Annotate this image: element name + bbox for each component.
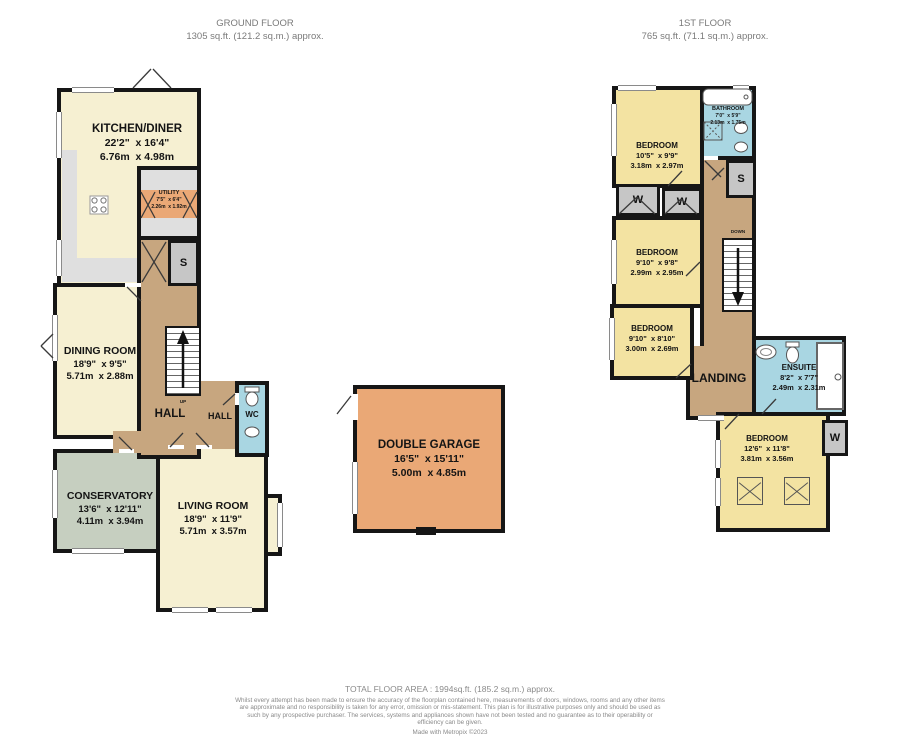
window: [352, 462, 358, 514]
hall-label: HALL: [138, 408, 202, 420]
garage-door-stub: [416, 527, 436, 535]
first-store-label: S: [737, 173, 744, 185]
window: [172, 607, 208, 613]
wardrobe-3-label: W: [830, 432, 840, 444]
bedroom3-label: BEDROOM 9'10" x 8'10" 3.00m x 2.69m: [612, 324, 692, 354]
bedroom4-fitting-right: [784, 477, 810, 505]
window: [216, 607, 252, 613]
wardrobe-3: W: [822, 420, 848, 456]
stairs-down: [722, 238, 754, 312]
window: [618, 85, 656, 91]
up-label: UP: [165, 399, 201, 404]
window: [72, 87, 114, 93]
door-opening: [704, 156, 718, 160]
bedroom4-label: BEDROOM 12'6" x 11'8" 3.81m x 3.56m: [720, 434, 814, 464]
total-floor-area: TOTAL FLOOR AREA : 1994sq.ft. (185.2 sq.…: [0, 684, 900, 694]
door-opening: [196, 445, 212, 449]
wardrobe-2: W: [662, 188, 702, 216]
window: [733, 85, 749, 91]
garage-door-opening: [352, 394, 358, 420]
ensuite-label: ENSUITE 8'2" x 7'7" 2.49m x 2.31m: [754, 363, 844, 393]
first-floor-header: 1ST FLOOR 765 sq.ft. (71.1 sq.m.) approx…: [570, 18, 840, 44]
wardrobe-2-label: W: [677, 196, 687, 208]
stairs-up: [165, 326, 201, 396]
credit-text: Made with Metropix ©2023: [0, 729, 900, 736]
kitchen-label: KITCHEN/DINER 22'2" x 16'4" 6.76m x 4.98…: [72, 122, 202, 164]
living-label: LIVING ROOM 18'9" x 11'9" 5.71m x 3.57m: [162, 500, 264, 538]
door-opening: [235, 393, 239, 405]
ground-floor-title: GROUND FLOOR: [120, 18, 390, 31]
dining-label: DINING ROOM 18'9" x 9'5" 5.71m x 2.88m: [55, 345, 145, 383]
wc-label: WC: [237, 410, 267, 419]
disclaimer-text: Whilst every attempt has been made to en…: [235, 697, 665, 727]
window: [56, 112, 62, 158]
ground-floor-area: 1305 sq.ft. (121.2 sq.m.) approx.: [120, 31, 390, 44]
ground-store-cupboard: S: [168, 240, 199, 286]
window: [715, 478, 721, 506]
window: [277, 503, 283, 547]
door-opening: [125, 283, 141, 287]
door-opening: [168, 445, 184, 449]
ground-store-label: S: [180, 257, 187, 269]
landing-label: LANDING: [680, 371, 758, 385]
window: [698, 415, 724, 421]
door-opening: [119, 449, 134, 453]
utility-label: UTILITY 7'5" x 6'4" 2.26m x 1.92m: [139, 190, 199, 210]
ground-floor-header: GROUND FLOOR 1305 sq.ft. (121.2 sq.m.) a…: [120, 18, 390, 44]
bedroom4-room: [716, 412, 830, 532]
down-label: DOWN: [722, 229, 754, 234]
wardrobe-1: W: [616, 184, 660, 216]
hall2-label: HALL: [199, 411, 241, 421]
garage-label: DOUBLE GARAGE 16'5" x 15'11" 5.00m x 4.8…: [363, 438, 495, 480]
floorplan-page: GROUND FLOOR 1305 sq.ft. (121.2 sq.m.) a…: [0, 0, 900, 742]
window: [72, 548, 124, 554]
first-floor-area: 765 sq.ft. (71.1 sq.m.) approx.: [570, 31, 840, 44]
bedroom1-room: [612, 86, 704, 188]
bedroom2-label: BEDROOM 9'10" x 9'8" 2.99m x 2.95m: [616, 248, 698, 278]
first-store-cupboard: S: [726, 160, 756, 198]
window: [56, 240, 62, 276]
conservatory-label: CONSERVATORY 13'6" x 12'11" 4.11m x 3.94…: [55, 490, 165, 528]
first-floor-title: 1ST FLOOR: [570, 18, 840, 31]
bathroom-label: BATHROOM 7'0" x 5'9" 2.13m x 1.75m: [701, 106, 755, 126]
wardrobe-1-label: W: [633, 194, 643, 206]
bedroom1-label: BEDROOM 10'5" x 9'9" 3.18m x 2.97m: [616, 141, 698, 171]
bedroom4-fitting-left: [737, 477, 763, 505]
